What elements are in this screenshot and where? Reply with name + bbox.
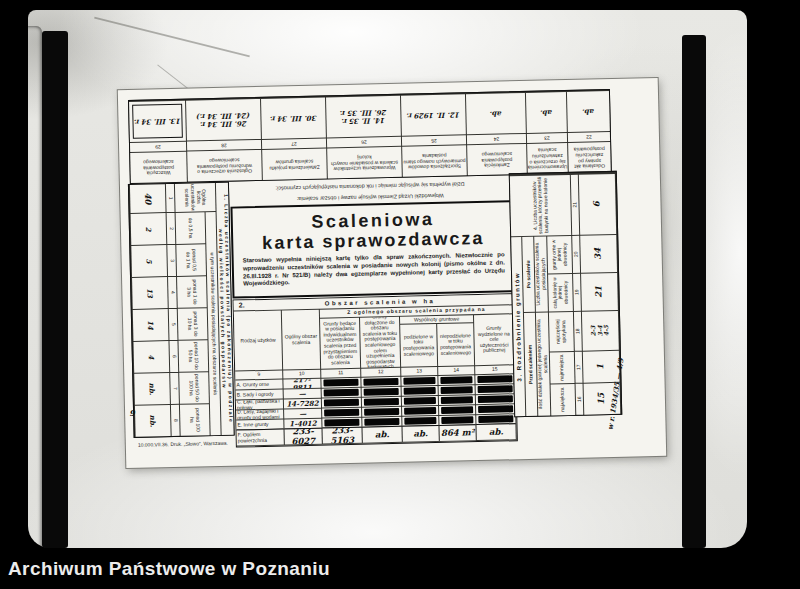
col-number: 4 [168, 277, 177, 308]
redaction-bar [364, 418, 399, 425]
col-header-12: Grunty dołączone do obszaru scalenia w t… [360, 317, 400, 368]
handwritten-value: 14 [133, 309, 169, 341]
col-number: 9 [235, 371, 282, 380]
redaction-bar [324, 409, 359, 416]
redaction-bar [478, 416, 513, 423]
area-table: 2. Obszar scalenia w ha Rodzaj użytków O… [233, 293, 518, 447]
redaction-bar [324, 389, 359, 396]
row-label: B. Sady i ogrody [236, 390, 283, 400]
handwritten-entry: 14. II. 35 r. 26. III. 35 r. [326, 96, 401, 138]
redaction-bar [363, 378, 398, 385]
group-label: ponad 100 ha [180, 404, 210, 436]
redaction-bar [403, 377, 435, 384]
col-number: 15 [475, 365, 514, 374]
redaction-bar [478, 386, 513, 393]
col-number: 14 [438, 366, 474, 375]
row-label: E. Inne grunty [236, 420, 283, 430]
redaction-bar-cell [439, 415, 475, 425]
col-number: 20 [572, 236, 580, 273]
redaction-bar-cell [438, 375, 474, 385]
total-label: Ogólna liczba uczestników scalenia [175, 183, 216, 212]
after-subheader: Liczba uczestników scalenia posiadającyc… [534, 236, 548, 311]
redaction-bar-cell [322, 388, 361, 398]
handwritten-value: 13 [132, 277, 168, 309]
redaction-bar-cell [475, 374, 514, 384]
group-label: ponad 10 do 50 ha [178, 340, 208, 372]
redaction-bar [364, 398, 399, 405]
redaction-bar-cell [402, 386, 438, 396]
col-header-15: Grunty wydzielone na cele użyteczności p… [474, 314, 514, 365]
handwritten-value: 2 [131, 213, 167, 245]
col-number: 28 [187, 140, 261, 151]
handwritten-value: 2-3 3-4 4-5 [582, 311, 619, 351]
handwritten-value: nb. [135, 405, 171, 437]
col-label: najczęściej spotykana [549, 312, 574, 352]
handwritten-value: nb. [134, 373, 170, 405]
col-number: 17 [575, 352, 583, 383]
redaction-bar-cell [476, 384, 515, 394]
printer-imprint: 10.000.VII.36. Druk. „Słowo”, Warszawa. [138, 440, 228, 448]
redaction-bar-cell [439, 405, 475, 415]
col-number: 5 [169, 309, 178, 340]
summary-value: 233-6027 [285, 429, 322, 445]
handwritten-entry: ab. [526, 92, 567, 133]
summary-value: 864 m² [439, 425, 475, 441]
redaction-bar [441, 406, 473, 413]
film-slot-bar-left [42, 31, 68, 548]
participants-table: 1. Liczba uczestników scalenia (po zakoń… [130, 182, 235, 436]
handwritten-value: 34 [580, 235, 617, 273]
redaction-bar [478, 396, 513, 403]
redaction-bar-cell [362, 417, 401, 427]
col-header-14: niepodzielone w toku postępowania scalen… [437, 323, 474, 366]
redaction-bar [478, 406, 513, 413]
col-number: 12 [361, 368, 400, 377]
col-label: najmniejsza [550, 352, 575, 384]
handwritten-entry: 12. II. 1929 r. [401, 94, 466, 135]
double-border-box: 13. III. 34 r. [132, 104, 183, 139]
col-number: 10 [283, 370, 320, 379]
section2-number: 2. [239, 301, 245, 309]
col-label: największa [551, 384, 576, 416]
col-number: 29 [130, 142, 186, 152]
col-header-13: podzielone w toku postępowania scaleniow… [400, 324, 437, 367]
handwritten-entry: ab. [466, 93, 526, 134]
handwritten-value: 40 [130, 184, 166, 213]
row-label: D. Lasy, zagajniki i grunty pod wodami [236, 410, 283, 420]
redaction-bar-cell [362, 397, 401, 407]
handwritten-value: 4 [133, 341, 169, 373]
col-number: 25 [402, 135, 466, 145]
group-label: ponad 1 do 3 ha [177, 276, 207, 308]
redaction-bar-cell [439, 395, 475, 405]
col-number: 18 [574, 312, 582, 351]
col-header: Odesłania akt sprawy po zakończeniu post… [568, 142, 611, 173]
redaction-bar [441, 416, 473, 423]
redaction-bar-cell [476, 394, 515, 404]
form-instructions: Starostwo wypełnia niniejszą kartę tylko… [243, 251, 506, 288]
col-header: Ogłoszenia orzeczenia o wdrożeniu postęp… [187, 150, 262, 182]
redaction-bar-cell [476, 414, 515, 424]
before-header: Przed scaleniem [524, 313, 537, 416]
redaction-bar-cell [402, 406, 438, 416]
col-header: Zamknięcia postępowania scaleniowego [467, 144, 527, 175]
redaction-bar-cell [361, 377, 400, 387]
col-header-ogolny: Ogólny obszar scalenia [282, 310, 320, 370]
summary-row-label: F. Ogółem powierzchnia [237, 430, 284, 446]
col-number: 3 [167, 245, 176, 276]
row-label: C. Łąki, pastwiska i połowy [236, 400, 283, 410]
col-header: Uprawomocnienia się orzeczenia o zatwier… [527, 143, 568, 174]
redaction-bar [404, 417, 436, 424]
col-number: 1 [166, 184, 175, 212]
handwritten-entry: 30. III. 34 r. [261, 97, 326, 138]
title-box: Scaleniowa karta sprawozdawcza Starostwo… [230, 200, 516, 298]
handwritten-value: 6 [579, 174, 616, 235]
col-number: 21 [571, 175, 579, 235]
col-number: 13 [401, 367, 437, 376]
redaction-bar [364, 408, 399, 415]
col-header: Sporządzenia dowodów pomiarowych nowego … [402, 145, 467, 176]
group-label: ponad 3 do 10 ha [178, 308, 208, 340]
col-label: grunty orne w jednej obwodnicy [547, 236, 572, 274]
redaction-bar [404, 397, 436, 404]
col-number: 26 [327, 137, 401, 148]
handwritten-entry: ab. [567, 91, 610, 132]
handwritten-entry: 26. III. 34 r. (24. III. 34 r.) [186, 99, 261, 141]
handwritten-value: — [284, 409, 321, 419]
redaction-bar [441, 386, 473, 393]
col-number: 2 [167, 213, 176, 244]
redaction-bar-cell [439, 385, 475, 395]
group-label: do 0,5 ha [176, 212, 206, 244]
col-header: Wprowadzenia uczestników scalenia w posi… [327, 147, 402, 179]
col-header: Wszczęcia postępowania scaleniowego [130, 152, 187, 183]
redaction-bar [324, 399, 359, 406]
handwritten-entry-boxed: 13. III. 34 r. [129, 101, 186, 142]
redaction-bar [324, 419, 359, 426]
summary-value: 233-5163 [323, 428, 362, 444]
col-number: 7 [170, 373, 179, 404]
fragmentation-table: 3. Rozdrobnienie gruntów Przed scaleniem… [509, 173, 620, 417]
stray-mark: 9 [129, 408, 135, 418]
redaction-bar-cell [322, 418, 361, 428]
redaction-bar [441, 396, 473, 403]
redaction-bar-cell [476, 404, 515, 414]
redaction-bar-cell [362, 407, 401, 417]
archive-caption: Archiwum Państwowe w Poznaniu [8, 558, 330, 580]
col-label: całą kolonię w jednej obwodnicy [548, 274, 573, 312]
col-number: 11 [321, 369, 360, 378]
film-edge-strip-left [2, 26, 42, 558]
col-number: 24 [467, 134, 526, 144]
col-number: 19 [573, 274, 581, 311]
col-header-rodzaj: Rodzaj użytków [234, 311, 282, 371]
redaction-bar-cell [402, 396, 438, 406]
redaction-bar [440, 376, 472, 383]
summary-value: ab. [476, 424, 515, 440]
handwritten-value: — [284, 389, 321, 399]
before-subheader: Ilość działek (parcel) jednego uczestnik… [536, 312, 550, 415]
row-label: A. Grunty orne [235, 380, 282, 390]
handwritten-value: 1-4012 [284, 419, 321, 429]
after-header: Po scaleniu [522, 237, 535, 312]
col-number: 27 [262, 138, 326, 148]
top-dates-table: Odesłania akt sprawy po zakończeniu post… [128, 89, 610, 182]
handwritten-value: 21 [581, 273, 618, 311]
col-header-11: Grunty będące w posiadaniu indywidualnem… [320, 318, 360, 369]
handwritten-value: 217-9811 [283, 379, 320, 389]
redaction-bar-cell [322, 398, 361, 408]
redaction-bar-cell [402, 416, 438, 426]
redaction-bar [364, 388, 399, 395]
redaction-bar [323, 379, 358, 386]
film-slot-bar-right [682, 35, 706, 548]
redaction-bar [404, 407, 436, 414]
scanned-document: Odesłania akt sprawy po zakończeniu post… [118, 78, 666, 468]
col-number: 8 [171, 405, 180, 436]
handwritten-value: 5 [131, 245, 167, 277]
section4-label: 4. Liczba uczestników scalenia, którzy p… [510, 175, 571, 236]
redaction-bar-cell [401, 376, 437, 386]
col-number: 23 [527, 133, 567, 143]
col-header: Zatwierdzenia projektu scalenia gruntów [262, 148, 327, 179]
summary-value: ab. [363, 427, 402, 443]
col-number: 6 [169, 341, 178, 372]
redaction-bar [404, 387, 436, 394]
summary-value: ab. [402, 426, 438, 442]
col-number: 16 [576, 384, 584, 415]
redaction-bar-cell [321, 378, 360, 388]
col-number: 22 [568, 132, 610, 142]
redaction-bar [477, 376, 512, 383]
redaction-bar-cell [362, 387, 401, 397]
group-label: ponad 50 do 100 ha [179, 372, 209, 404]
handwritten-value: 14-7282 [284, 399, 321, 409]
redaction-bar-cell [322, 408, 361, 418]
group-label: ponad 0,5 do 1 ha [176, 244, 206, 276]
